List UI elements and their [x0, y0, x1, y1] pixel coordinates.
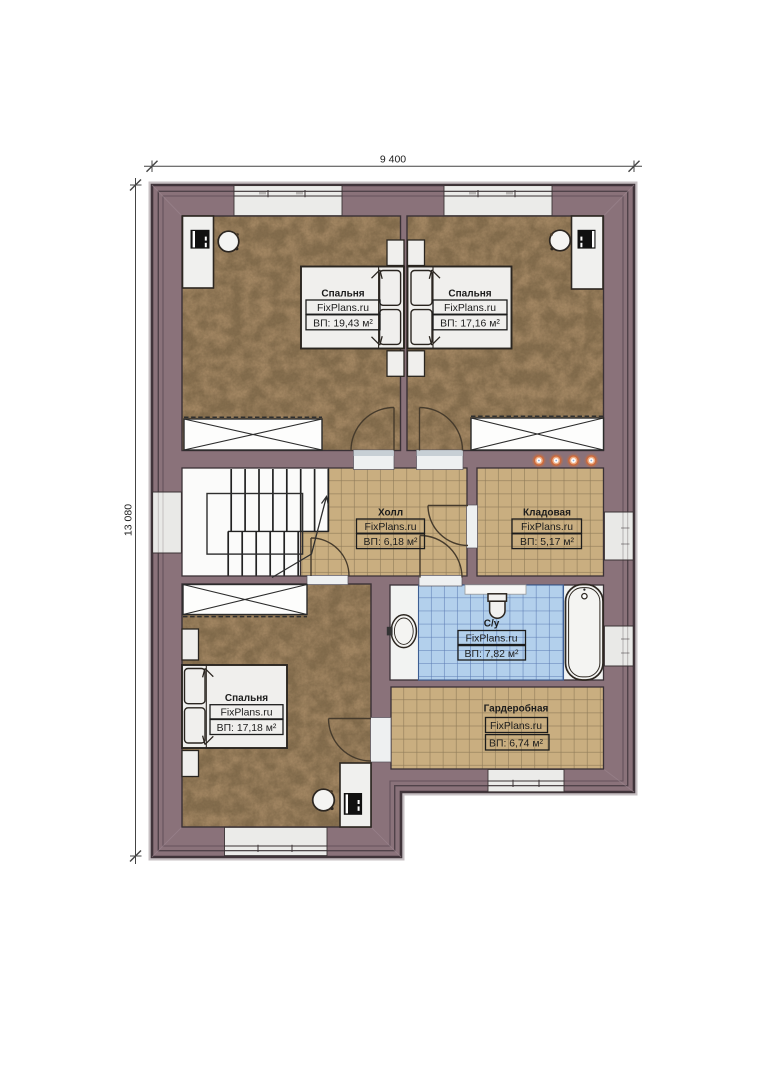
svg-text:ВП: 17,18 м²: ВП: 17,18 м² [217, 723, 277, 734]
svg-text:FixPlans.ru: FixPlans.ru [221, 708, 273, 719]
svg-text:Спальня: Спальня [448, 289, 491, 300]
svg-text:Спальня: Спальня [321, 289, 364, 300]
svg-text:FixPlans.ru: FixPlans.ru [365, 522, 417, 533]
svg-text:ВП: 5,17 м²: ВП: 5,17 м² [520, 537, 574, 548]
svg-text:ВП: 6,74 м²: ВП: 6,74 м² [489, 738, 543, 749]
svg-text:9 400: 9 400 [380, 154, 406, 166]
svg-text:FixPlans.ru: FixPlans.ru [490, 721, 542, 732]
svg-text:ВП: 7,82 м²: ВП: 7,82 м² [465, 649, 519, 660]
svg-text:FixPlans.ru: FixPlans.ru [444, 303, 496, 314]
svg-text:С/у: С/у [484, 619, 500, 630]
svg-text:Кладовая: Кладовая [523, 508, 571, 519]
svg-text:ВП: 6,18 м²: ВП: 6,18 м² [364, 537, 418, 548]
svg-text:FixPlans.ru: FixPlans.ru [521, 522, 573, 533]
svg-text:Холл: Холл [378, 508, 403, 519]
svg-text:ВП: 19,43 м²: ВП: 19,43 м² [313, 318, 373, 329]
svg-text:FixPlans.ru: FixPlans.ru [317, 303, 369, 314]
svg-text:Гардеробная: Гардеробная [484, 703, 549, 715]
svg-text:ВП: 17,16 м²: ВП: 17,16 м² [440, 318, 500, 329]
svg-text:Спальня: Спальня [225, 693, 268, 704]
svg-text:13 080: 13 080 [123, 504, 135, 536]
svg-text:FixPlans.ru: FixPlans.ru [466, 633, 518, 644]
